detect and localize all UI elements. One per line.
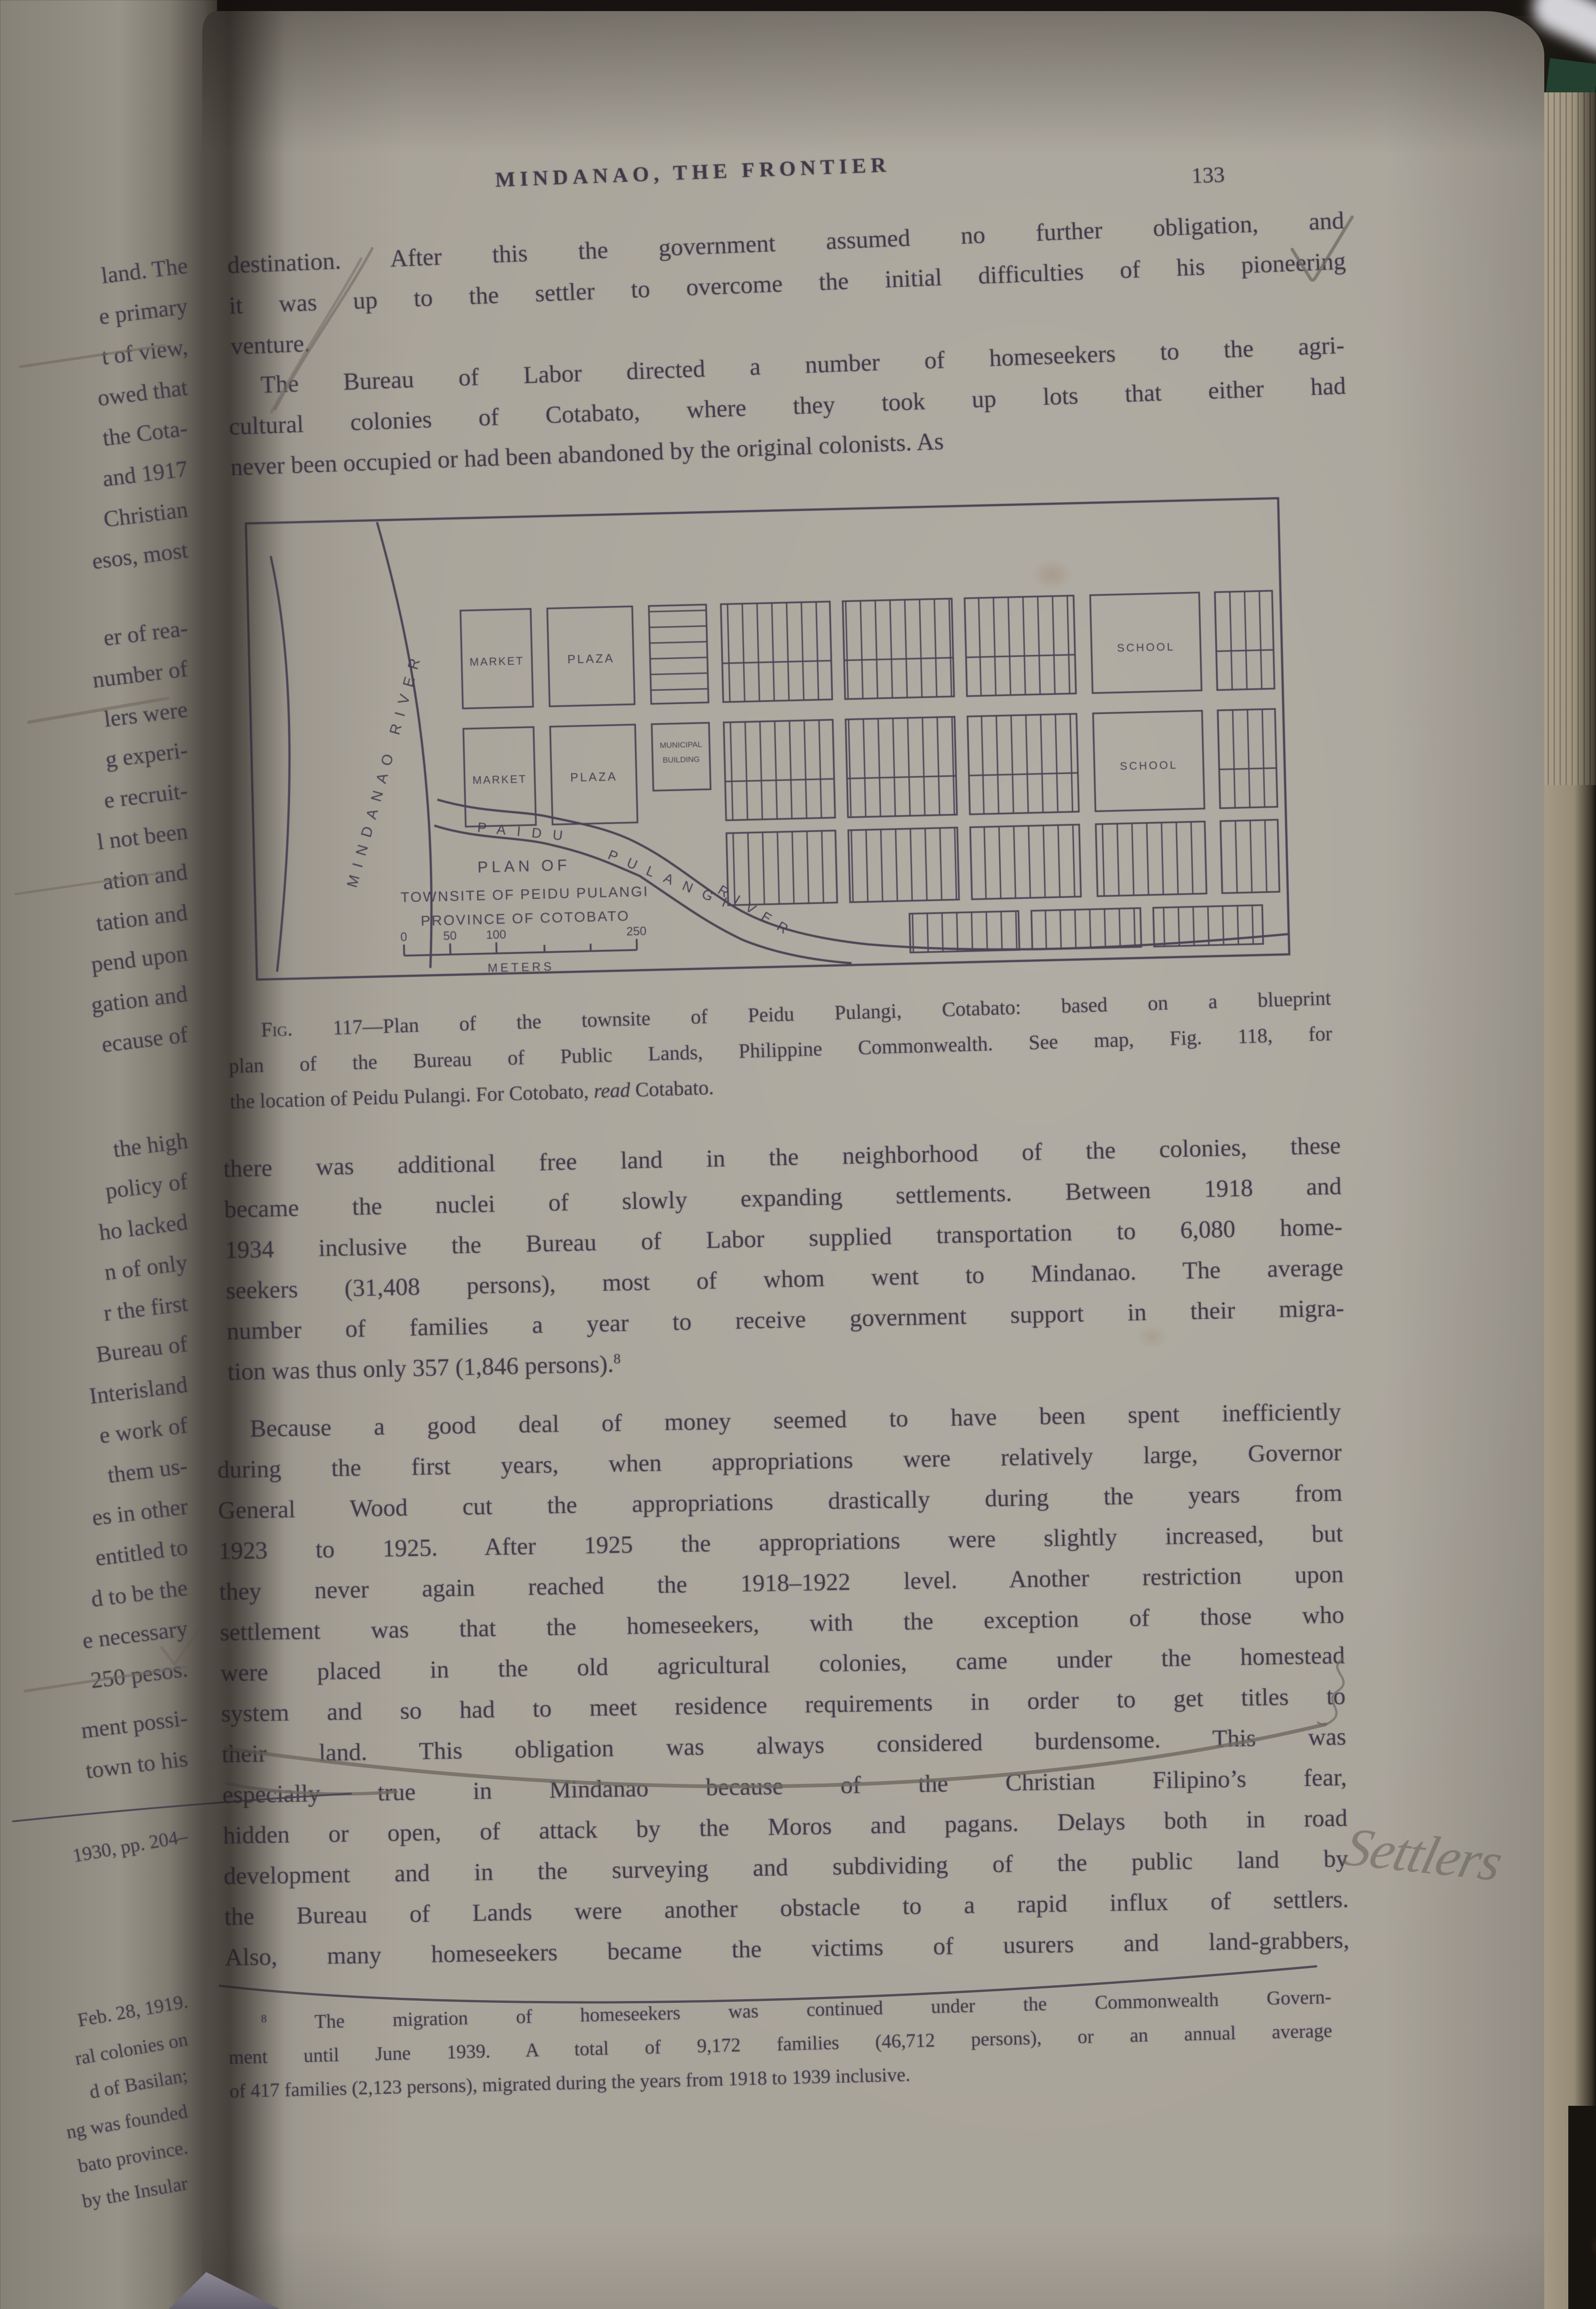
mindanao-river-label: MINDANAO RIVER <box>344 649 426 889</box>
strip-lots-block <box>649 604 708 704</box>
scale-tick-0: 0 <box>400 930 407 943</box>
left-page-fragment: pend upon <box>90 939 189 978</box>
school-label: SCHOOL <box>1117 641 1175 654</box>
left-page-fragment: Christian <box>102 496 189 532</box>
caption-text: Cotabato. <box>630 1076 714 1101</box>
left-page-footnote-fragment: ral colonies on <box>73 2028 189 2070</box>
left-page-footnote-fragment: 1930, pp. 204– <box>71 1825 190 1867</box>
map-title-line1: PLAN OF <box>477 857 570 876</box>
scale-tick-250: 250 <box>626 924 647 938</box>
market-label: MARKET <box>472 773 527 787</box>
townsite-plan-map: MARKET MARKET PLAZA PLAZA SCHOOL SCHOOL … <box>238 487 1298 988</box>
figure-label: Fig. 117 <box>260 1015 363 1041</box>
map-lot-blocks <box>721 591 1281 957</box>
left-page-fragment: tation and <box>95 899 189 937</box>
map-title-line2: TOWNSITE OF PEIDU PULANGI <box>400 883 649 905</box>
left-page-footnote-fragment: ng was founded <box>65 2100 189 2143</box>
paragraph-4: Because a good deal of money seemed to h… <box>216 1391 1349 1978</box>
caption-text: the location of Peidu Pulangi. For Cotob… <box>230 1080 594 1113</box>
caption-italic-word: read <box>593 1079 630 1102</box>
footnote-reference: 8 <box>613 1351 621 1366</box>
scale-bar <box>404 939 637 955</box>
left-page-fragment: the high <box>111 1127 189 1162</box>
left-page-fragment: esos, most <box>91 536 189 574</box>
background-bottom-right <box>1568 2106 1596 2309</box>
map-title-line3: PROVINCE OF COTOBATO <box>421 907 630 929</box>
river-word-pulangi: PULANGI <box>606 847 739 915</box>
left-page-footnote-fragment: bato province. <box>76 2136 189 2177</box>
left-page-fragment: g experi- <box>104 736 189 773</box>
school-label: SCHOOL <box>1120 759 1178 773</box>
left-page-fragment: entitled to <box>94 1533 189 1571</box>
book-photo-scene: land. The e primary t of view, owed that… <box>0 0 1596 2309</box>
footnote-marker: 8 <box>261 2013 267 2025</box>
left-page-footnote-fragment: Feb. 28, 1919. <box>76 1990 189 2031</box>
left-page-fragment: town to his <box>84 1745 189 1784</box>
left-page-fragment: lers were <box>103 695 189 732</box>
text-run: tion was thus only 357 (1,846 persons). <box>227 1351 614 1385</box>
left-page-fragment: and 1917 <box>101 455 189 492</box>
left-page-fragment: number of <box>91 655 189 693</box>
left-page-fragment: land. The <box>100 252 189 289</box>
municipal-label-line1: MUNICIPAL <box>659 740 702 750</box>
left-page-fragment: the Cota- <box>101 414 189 451</box>
left-page-fragment: Bureau of <box>95 1330 189 1368</box>
left-page-fragment: n of only <box>103 1249 189 1286</box>
mindanao-river-west-bank <box>267 556 295 972</box>
left-page-fragment: e primary <box>97 292 189 330</box>
left-page-fragment: Interisland <box>88 1371 189 1409</box>
market-label: MARKET <box>469 655 524 669</box>
left-page-fragment: r the first <box>102 1289 189 1326</box>
plaza-label: PLAZA <box>570 769 617 784</box>
scale-unit-label: METERS <box>487 959 554 975</box>
left-page-fragment: e work of <box>98 1411 189 1449</box>
page-fore-edge-texture <box>1542 92 1596 785</box>
left-page-fragment: d to be the <box>90 1574 189 1612</box>
scale-tick-50: 50 <box>443 929 457 943</box>
page-number: 133 <box>1191 162 1225 188</box>
left-page-footnote-fragment: by the Insular <box>80 2172 189 2212</box>
left-page-fragment: ment possi- <box>79 1704 189 1744</box>
left-page-fragment: ation and <box>101 858 189 895</box>
municipal-label-line2: BUILDING <box>663 755 700 765</box>
left-page-fragment: e recruit- <box>103 777 189 814</box>
left-page-fragment: ho lacked <box>97 1208 189 1245</box>
left-page-fragment: e necessary <box>81 1614 189 1654</box>
left-page-fragment: er of rea- <box>102 614 189 651</box>
left-page-fragment: policy of <box>104 1167 189 1204</box>
left-page: land. The e primary t of view, owed that… <box>0 0 217 2309</box>
paragraph-3: there was additional free land in the ne… <box>223 1125 1346 1393</box>
scale-tick-100: 100 <box>486 927 506 942</box>
left-page-fragment: es in other <box>91 1493 189 1531</box>
figure-117: MARKET MARKET PLAZA PLAZA SCHOOL SCHOOL … <box>238 487 1298 988</box>
plaza-label: PLAZA <box>567 651 615 666</box>
left-page-fragment: l not been <box>96 817 189 855</box>
left-page-fragment: 250 pesos. <box>89 1655 189 1693</box>
left-page-fragment: ecause of <box>100 1021 189 1058</box>
left-page-fragment: t of view, <box>100 333 189 370</box>
left-page-footnote-fragment: d of Basilan; <box>88 2064 189 2103</box>
left-page-fragment: them us- <box>106 1452 189 1488</box>
left-page-fragment: gation and <box>90 980 189 1018</box>
left-page-fragment: owed that <box>96 374 189 411</box>
